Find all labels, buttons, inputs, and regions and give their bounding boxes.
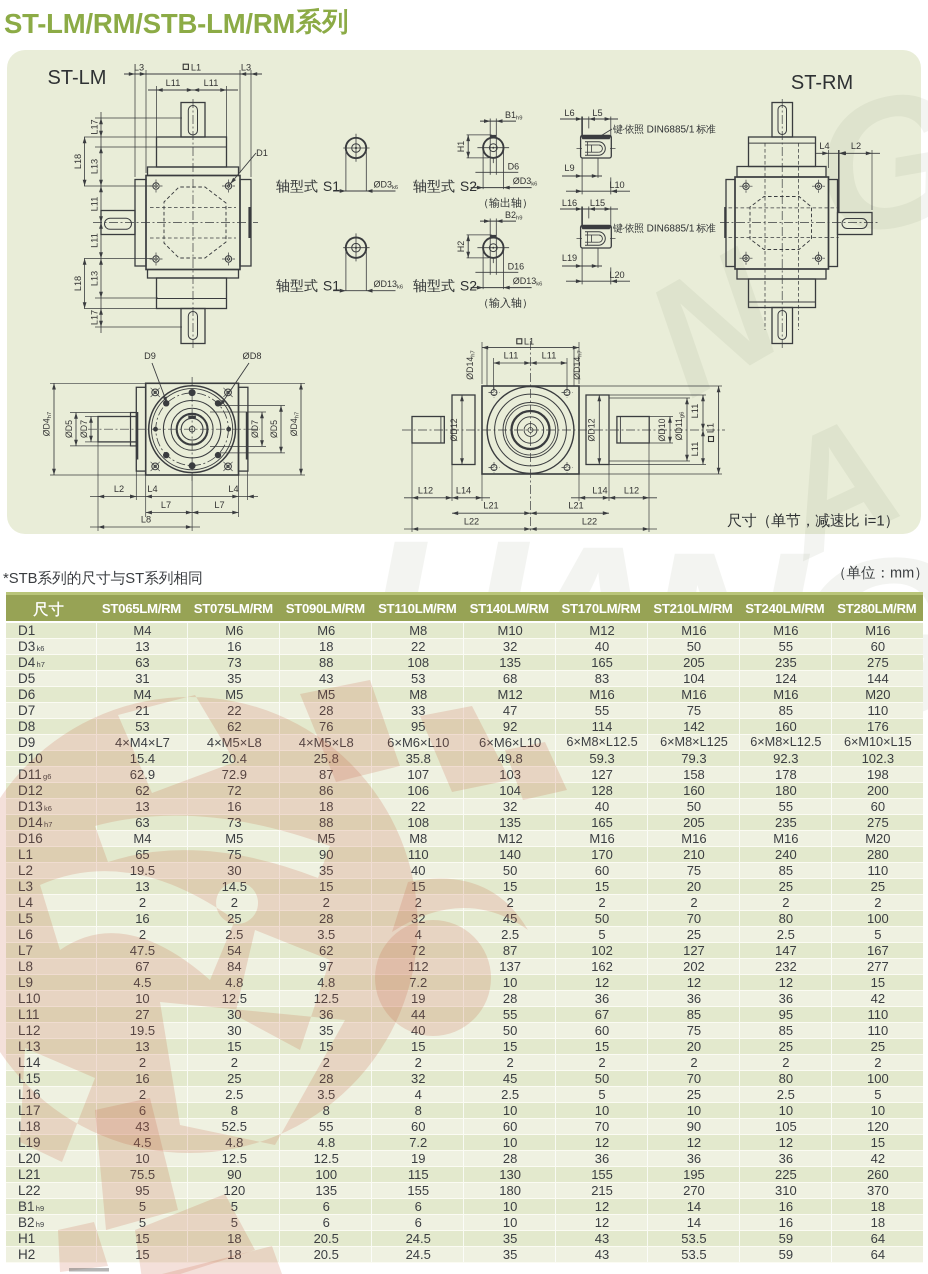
svg-text:ØD3k6: ØD3k6 (374, 180, 399, 192)
svg-text:L4: L4 (819, 141, 829, 151)
svg-text:L7: L7 (161, 500, 171, 510)
svg-text:S2: S2 (460, 278, 477, 294)
svg-text:L11: L11 (504, 351, 519, 361)
svg-text:ØD13k6: ØD13k6 (374, 279, 404, 291)
svg-text:ØD12: ØD12 (449, 418, 459, 441)
svg-text:ØD7: ØD7 (79, 420, 89, 438)
svg-text:L7: L7 (214, 500, 224, 510)
svg-text:L18: L18 (73, 154, 83, 169)
svg-text:L15: L15 (590, 198, 605, 208)
svg-text:ØD12: ØD12 (586, 418, 596, 441)
svg-text:L11: L11 (90, 233, 100, 248)
svg-text:L16: L16 (562, 198, 577, 208)
svg-text:L5: L5 (592, 108, 602, 118)
svg-text:L13: L13 (90, 159, 100, 174)
svg-text:ØD5: ØD5 (64, 420, 74, 438)
svg-text:L2: L2 (851, 141, 861, 151)
svg-text:L8: L8 (141, 515, 151, 525)
svg-text:L11: L11 (690, 404, 700, 419)
svg-text:ØD5: ØD5 (269, 420, 279, 438)
svg-text:L11: L11 (542, 351, 557, 361)
svg-text:ØD3k6: ØD3k6 (513, 176, 538, 188)
svg-text:L22: L22 (582, 517, 597, 527)
svg-text:L4: L4 (147, 484, 157, 494)
svg-text:L1: L1 (191, 63, 201, 73)
svg-text:ØD13k6: ØD13k6 (513, 276, 543, 288)
svg-text:ØD7: ØD7 (250, 420, 260, 438)
svg-text:L4: L4 (228, 484, 238, 494)
svg-text:L10: L10 (609, 180, 624, 190)
svg-text:ST: ST (125, 571, 144, 587)
svg-text:ST-RM: ST-RM (791, 72, 853, 94)
svg-text:L11: L11 (90, 197, 100, 212)
svg-text:D16: D16 (508, 262, 525, 272)
svg-text:L22: L22 (464, 517, 479, 527)
svg-text:i=1: i=1 (864, 513, 884, 530)
svg-text:S1: S1 (323, 178, 340, 194)
svg-text:L11: L11 (690, 442, 700, 457)
svg-text:L1: L1 (524, 337, 534, 347)
svg-text:ØD14h7: ØD14h7 (465, 350, 477, 379)
svg-text:L2: L2 (114, 484, 124, 494)
svg-text:L11: L11 (166, 78, 181, 88)
svg-text:ØD10: ØD10 (657, 418, 667, 441)
svg-text:DIN6885/1: DIN6885/1 (647, 224, 695, 235)
svg-text:ØD4h7: ØD4h7 (289, 412, 301, 437)
svg-text:L3: L3 (134, 63, 144, 73)
svg-text:L11: L11 (204, 78, 219, 88)
svg-text:H1: H1 (456, 141, 466, 153)
svg-text:L18: L18 (73, 276, 83, 291)
svg-text:D1: D1 (256, 148, 268, 158)
svg-text:DIN6885/1: DIN6885/1 (647, 125, 695, 136)
svg-text:L21: L21 (568, 501, 583, 511)
svg-text:L20: L20 (609, 270, 624, 280)
svg-text:ST-LM: ST-LM (48, 67, 107, 89)
svg-text:L17: L17 (90, 310, 100, 325)
svg-text:ØD8: ØD8 (243, 351, 262, 361)
svg-text:L14: L14 (456, 485, 471, 495)
svg-text:H2: H2 (456, 241, 466, 253)
svg-text:L21: L21 (483, 501, 498, 511)
svg-text:ØD4h7: ØD4h7 (42, 412, 54, 437)
svg-text:D9: D9 (144, 351, 156, 361)
svg-text:S2: S2 (460, 178, 477, 194)
svg-text:L6: L6 (564, 108, 574, 118)
svg-text:ØD11g6: ØD11g6 (674, 412, 686, 441)
svg-text:B2h9: B2h9 (505, 210, 522, 222)
svg-text:*STB: *STB (3, 571, 38, 587)
svg-text:D6: D6 (508, 162, 520, 172)
svg-text:S1: S1 (323, 278, 340, 294)
svg-text:mm: mm (890, 566, 914, 582)
svg-text:L19: L19 (562, 253, 577, 263)
svg-text:L1: L1 (706, 423, 716, 433)
svg-text:L12: L12 (418, 485, 433, 495)
svg-text:L12: L12 (624, 485, 639, 495)
svg-text:L9: L9 (564, 163, 574, 173)
svg-text:L13: L13 (90, 271, 100, 286)
svg-text:L17: L17 (90, 119, 100, 134)
svg-text:B1h9: B1h9 (505, 110, 522, 122)
svg-text:L3: L3 (241, 63, 251, 73)
svg-text:L14: L14 (592, 485, 607, 495)
